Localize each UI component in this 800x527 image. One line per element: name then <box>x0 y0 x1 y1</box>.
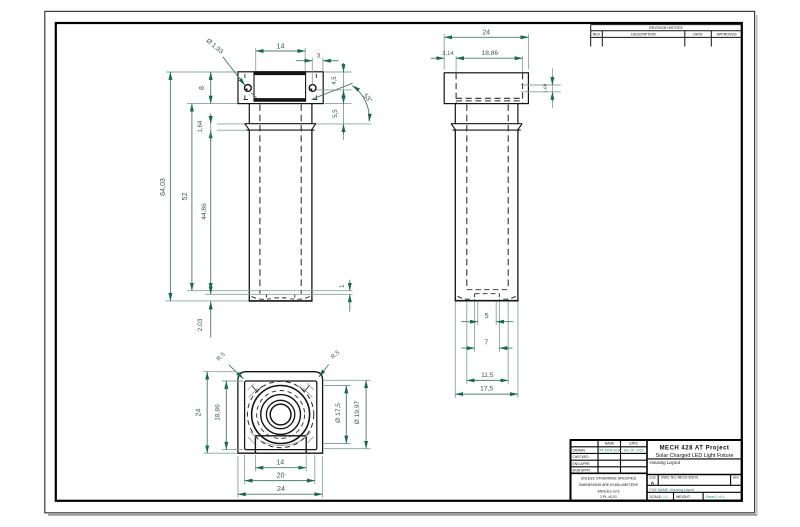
svg-text:SCALE: 1:1: SCALE: 1:1 <box>650 495 668 499</box>
svg-text:FILE NAME: Housing Layout: FILE NAME: Housing Layout <box>650 488 695 492</box>
svg-text:24: 24 <box>195 409 203 417</box>
svg-text:ANGLES ±0.5: ANGLES ±0.5 <box>598 489 620 493</box>
svg-text:7: 7 <box>484 338 488 347</box>
svg-text:4,5: 4,5 <box>332 76 338 85</box>
svg-text:DIMENSIONS ARE IN MILLIMETERS: DIMENSIONS ARE IN MILLIMETERS <box>579 483 639 487</box>
svg-text:1,69: 1,69 <box>543 83 549 93</box>
svg-text:64,03: 64,03 <box>159 178 167 196</box>
svg-text:Solar Charged LED Light Fixtur: Solar Charged LED Light Fixture <box>656 453 734 459</box>
svg-text:Sheet 1 of 1: Sheet 1 of 1 <box>706 495 725 499</box>
svg-text:MGR APPR.: MGR APPR. <box>573 468 591 472</box>
svg-text:1: 1 <box>339 284 346 288</box>
svg-text:NAME: NAME <box>605 442 615 446</box>
svg-text:18,86: 18,86 <box>482 50 499 57</box>
svg-text:3,14: 3,14 <box>442 51 454 57</box>
svg-text:DATE: DATE <box>629 442 638 446</box>
svg-text:8: 8 <box>198 86 206 90</box>
svg-text:11,5: 11,5 <box>481 372 494 379</box>
svg-text:3: 3 <box>317 52 321 59</box>
svg-text:2 PL ±0.01: 2 PL ±0.01 <box>600 495 617 499</box>
svg-text:MECH 428 AT Project: MECH 428 AT Project <box>660 446 730 452</box>
svg-text:UNLESS OTHERWISE SPECIFIED: UNLESS OTHERWISE SPECIFIED <box>581 477 637 481</box>
svg-text:44,86: 44,86 <box>201 203 208 220</box>
svg-text:20: 20 <box>277 471 285 479</box>
svg-text:APPROVED: APPROVED <box>717 33 737 37</box>
svg-text:5: 5 <box>485 311 489 320</box>
svg-text:24: 24 <box>277 485 285 493</box>
svg-text:REVISION HISTORY: REVISION HISTORY <box>649 26 684 30</box>
svg-text:SIZE: SIZE <box>649 475 655 479</box>
svg-text:17,5: 17,5 <box>480 386 493 393</box>
svg-text:Housing Layout: Housing Layout <box>650 460 681 465</box>
svg-text:DRAWN: DRAWN <box>573 448 586 452</box>
svg-text:14: 14 <box>277 42 285 51</box>
svg-text:CHECKED: CHECKED <box>573 455 590 459</box>
svg-text:1,64: 1,64 <box>198 120 204 132</box>
svg-text:14: 14 <box>276 458 284 466</box>
svg-text:DATE: DATE <box>693 33 703 37</box>
svg-text:24: 24 <box>482 27 490 36</box>
svg-text:Ø 19,97: Ø 19,97 <box>354 400 361 424</box>
svg-text:REV: REV <box>593 33 601 37</box>
svg-text:2,03: 2,03 <box>197 318 204 331</box>
svg-text:ENG APPR.: ENG APPR. <box>573 462 591 466</box>
svg-text:Nov 30, 2015: Nov 30, 2015 <box>624 448 644 452</box>
svg-text:DWG. NO. MECH 428-01: DWG. NO. MECH 428-01 <box>661 476 699 480</box>
svg-text:5,5: 5,5 <box>333 109 339 118</box>
svg-text:REV: REV <box>733 475 739 479</box>
svg-text:DESCRIPTION: DESCRIPTION <box>631 33 656 37</box>
svg-text:52: 52 <box>181 193 189 201</box>
svg-text:Ø 17,5: Ø 17,5 <box>335 403 342 423</box>
svg-text:JPF MTM SDW: JPF MTM SDW <box>598 448 622 452</box>
svg-text:18,86: 18,86 <box>215 404 222 421</box>
svg-text:WEIGHT:: WEIGHT: <box>676 495 691 499</box>
